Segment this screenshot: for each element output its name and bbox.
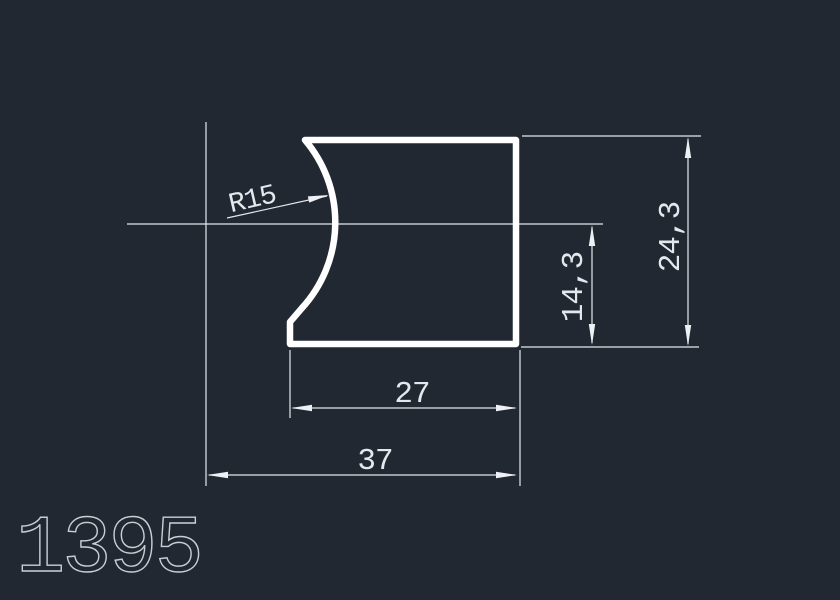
dimension-overall-width: 37 bbox=[207, 444, 517, 479]
inner-width-value: 27 bbox=[394, 377, 429, 412]
part-number: 1395 bbox=[16, 503, 201, 596]
dim-arrow-right-icon bbox=[496, 405, 517, 411]
radius-label: R15 bbox=[226, 180, 279, 221]
dimension-overall-height: 24,3 bbox=[521, 136, 701, 347]
overall-height-value: 24,3 bbox=[654, 202, 689, 272]
dim-arrow-up-icon bbox=[685, 137, 691, 158]
centerlines bbox=[127, 122, 603, 486]
cad-canvas: R15 24,3 14,3 bbox=[0, 0, 840, 600]
dim-arrow-up-icon bbox=[589, 225, 595, 246]
dim-arrow-left-icon bbox=[207, 472, 228, 478]
overall-width-value: 37 bbox=[357, 444, 392, 479]
dim-arrow-down-icon bbox=[685, 325, 691, 346]
dimension-radius: R15 bbox=[226, 180, 330, 221]
dim-arrow-down-icon bbox=[589, 324, 595, 345]
technical-drawing: R15 24,3 14,3 bbox=[0, 0, 840, 600]
dim-arrow-left-icon bbox=[291, 405, 312, 411]
dimension-inner-width: 27 bbox=[290, 350, 517, 418]
dimension-step-height: 14,3 bbox=[557, 225, 595, 345]
step-height-value: 14,3 bbox=[557, 252, 592, 322]
profile-outline bbox=[290, 140, 516, 344]
radius-arrow-icon bbox=[308, 192, 330, 203]
dim-arrow-right-icon bbox=[496, 472, 517, 478]
